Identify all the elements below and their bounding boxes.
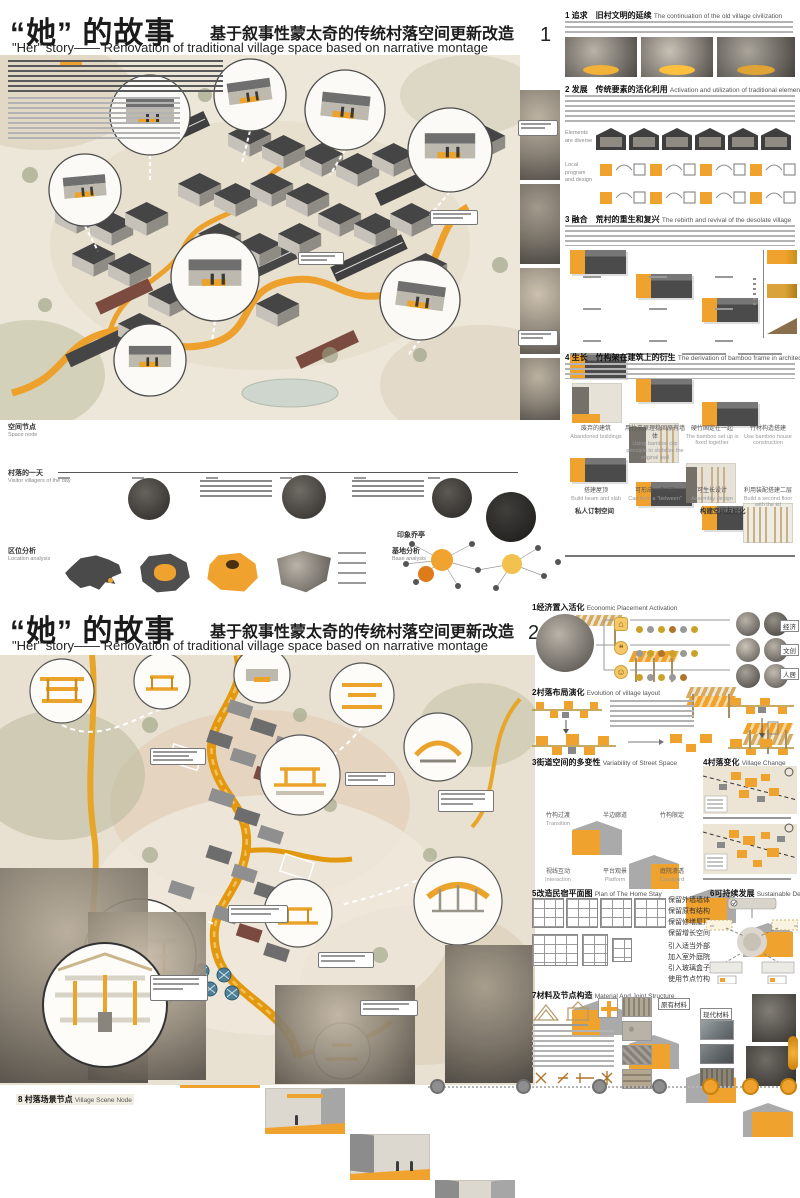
map-note-box	[318, 952, 374, 968]
progress-dot-active	[702, 1078, 719, 1095]
scene-strip-heading: 8 村落场景节点 Village Scene Node	[16, 1094, 134, 1105]
progress-line	[428, 1086, 794, 1088]
map-note-box	[228, 905, 288, 923]
map-note-box	[150, 975, 208, 1001]
orange-joint-blob	[788, 1036, 798, 1070]
floor-plan	[566, 898, 598, 928]
joint-sketches	[532, 1070, 620, 1086]
material-paragraph	[532, 1030, 614, 1068]
panel2-subtitle-en: "Her" story—— Renovation of traditional …	[12, 638, 488, 653]
bamboo-platform	[767, 250, 797, 264]
truss-caption	[532, 1024, 588, 1026]
space-node-render	[265, 1088, 345, 1134]
econ-photo	[736, 664, 760, 688]
econ-site-photo	[536, 614, 594, 672]
old-street-photo	[717, 37, 795, 77]
intro-paragraph-cn	[8, 60, 223, 92]
elements-diverse-label: Elements are diverse	[565, 130, 593, 145]
floor-plan	[532, 898, 564, 928]
map-label-box	[298, 252, 344, 265]
floor-plan	[532, 934, 578, 966]
timeline-photo	[128, 478, 170, 520]
material-photo-bamboo	[622, 997, 652, 1017]
material-photo-rock	[622, 1045, 652, 1065]
village-change-maps	[703, 766, 797, 876]
progress-dot	[592, 1079, 607, 1094]
section2-heading: 2 发展 传统要素的活化利用 Activation and utilizatio…	[565, 84, 800, 95]
section3-paragraph	[565, 225, 795, 246]
bamboo-caption: 硬竹固定在一起The bamboo set up is fixed togeth…	[682, 426, 742, 447]
progress-dot-active	[742, 1078, 759, 1095]
traditional-element-houses	[596, 128, 796, 150]
homestay-icon: ⌂	[614, 617, 628, 631]
friendly-space-label: 构建空间友好化	[700, 508, 746, 516]
module-grid	[565, 250, 798, 350]
pergola-caption: 可生长设计Assembly design	[682, 488, 742, 502]
progress-dot	[652, 1079, 667, 1094]
floor-plan	[634, 898, 666, 928]
location-analysis-label: 区位分析Location analysis	[8, 548, 50, 563]
street-caption: 庭院渗透 Courtyard	[644, 869, 700, 883]
bamboo-platform	[767, 284, 797, 298]
econ-tag: 人居	[780, 668, 799, 680]
structure-axon-photo	[752, 994, 796, 1042]
section3-heading: 3 融合 荒村的重生和复兴 The rebirth and revival of…	[565, 214, 791, 225]
econ-icon-row	[634, 644, 734, 662]
street-caption: 竹构限定	[644, 813, 700, 821]
econ-icon-row	[634, 620, 734, 638]
china-map-marker	[108, 578, 113, 583]
street-caption: 平台观景 Platform	[587, 869, 643, 883]
speech-box	[518, 120, 558, 136]
map-note-box	[360, 1000, 418, 1016]
pavilion-callout	[30, 940, 180, 1070]
floor-plan	[600, 898, 632, 928]
map-note-box	[438, 790, 494, 812]
program-diagram	[596, 156, 796, 210]
street-caption: 视线互动 Interaction	[530, 869, 586, 883]
pergola-caption: 搭建屋顶Build beam and slab	[566, 488, 626, 502]
bamboo-caption: 废弃的建筑Abandoned buildings	[566, 426, 626, 440]
space-node-render	[350, 1134, 430, 1180]
pergola-caption: 利用装配搭建二层Build a second floor with the ki…	[739, 488, 797, 509]
old-street-photo	[641, 37, 713, 77]
econ-icon-row	[634, 668, 734, 686]
portrait-photo	[520, 358, 560, 420]
progress-dot	[430, 1079, 445, 1094]
chat-icon: ❝	[614, 641, 628, 655]
material-photo-stone	[622, 1021, 652, 1041]
section1-heading: 1 追求 旧村文明的延续 The continuation of the old…	[565, 10, 782, 21]
econ-tag: 文创	[780, 644, 799, 656]
timeline-photo	[432, 478, 472, 518]
bamboo-step1	[572, 383, 622, 423]
elevation-note	[565, 555, 795, 557]
panel1-subtitle-en: "Her" story—— Renovation of traditional …	[12, 40, 488, 55]
timeline-note	[352, 480, 424, 498]
villager-photo	[445, 945, 533, 1083]
map-label-box	[430, 210, 478, 225]
intro-highlight	[60, 62, 82, 65]
pergola-caption: 可形成一个“间”Can form a "between"	[625, 488, 685, 502]
local-program-label: Local program and design	[565, 162, 593, 185]
site-photo-callouts	[338, 552, 372, 584]
street-caption: 半边廊道	[587, 813, 643, 821]
county-map	[204, 552, 260, 594]
province-map	[138, 552, 192, 594]
section4-heading: 4 生长 竹构架在建筑上的衍生 The derivation of bamboo…	[565, 352, 800, 363]
econ-photo	[736, 612, 760, 636]
bamboo-caption: 用竹夹原理稳固原有墙体Using bamboo clip principle t…	[625, 426, 685, 462]
custom-space-label: 私人订制空间	[575, 508, 614, 516]
econ-photo	[736, 638, 760, 662]
speech-box	[518, 330, 558, 346]
timeline-photo	[282, 475, 326, 519]
material-photo-steel	[700, 1044, 734, 1064]
truss-elevations	[532, 1000, 592, 1022]
portrait-photo	[520, 184, 560, 264]
panel1-number: 1	[540, 24, 551, 47]
village-change-caption	[703, 878, 791, 880]
street-caption: 竹构过渡 Transition	[530, 813, 586, 827]
space-node-render	[435, 1180, 515, 1198]
joint-detail-icon	[598, 998, 618, 1018]
map-note-box	[150, 748, 206, 765]
space-node-label: 空间节点Space node	[8, 424, 37, 439]
impression-label: 印象乔亭	[396, 532, 426, 540]
china-map	[62, 552, 124, 594]
material-photo-metal	[700, 1020, 734, 1040]
sustainable-diagram	[706, 898, 798, 984]
econ-tag: 经济	[780, 620, 799, 632]
timeline-note	[200, 480, 272, 498]
house-elevation	[743, 1103, 793, 1137]
homestay-add-list: 引入适当外部加入室外庭院引入玻璃盒子使用节点竹构	[668, 942, 710, 985]
floor-plan	[612, 938, 632, 962]
progress-dot-active	[780, 1078, 797, 1095]
village-change-caption	[703, 817, 791, 819]
progress-dot	[516, 1079, 531, 1094]
floor-plan	[582, 934, 608, 966]
section1-caption	[565, 21, 793, 34]
bamboo-platform	[767, 318, 797, 334]
map-note-box	[345, 772, 395, 786]
modern-material-label: 现代材料	[700, 1008, 732, 1020]
competition-poster: “她” 的故事 基于叙事性蒙太奇的传统村落空间更新改造 "Her" story—…	[0, 0, 800, 1198]
original-material-label: 原有材料	[658, 998, 690, 1010]
street-heading: 3街道空间的多变性 Variability of Street Space	[532, 757, 677, 768]
site-photo	[272, 550, 334, 594]
evolution-paragraph	[610, 700, 694, 730]
smiley-icon: ☺	[614, 665, 628, 679]
intro-paragraph-en	[8, 97, 180, 141]
section2-paragraph	[565, 95, 795, 125]
homestay-keep-list: 保留外墙墙体保留原有结构保留修缮屋顶保留增长空间	[668, 896, 710, 939]
section4-paragraph	[565, 363, 795, 379]
old-street-photo	[565, 37, 637, 77]
bamboo-caption: 竹材构造搭建Use bamboo house construction	[739, 426, 797, 447]
